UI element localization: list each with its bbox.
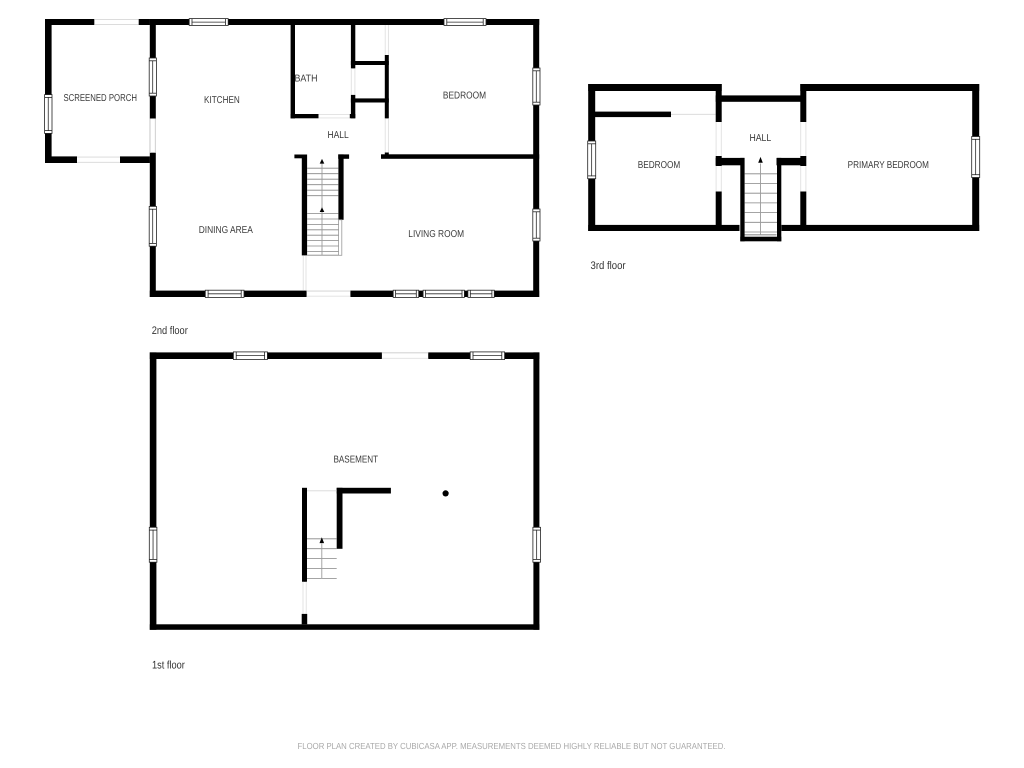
svg-text:HALL: HALL [327,130,349,141]
svg-text:BATH: BATH [295,74,318,85]
svg-text:KITCHEN: KITCHEN [204,95,240,106]
svg-text:DINING AREA: DINING AREA [199,225,253,236]
svg-text:3rd floor: 3rd floor [591,260,626,272]
svg-text:SCREENED PORCH: SCREENED PORCH [63,93,137,104]
svg-text:FLOOR PLAN CREATED BY CUBICASA: FLOOR PLAN CREATED BY CUBICASA APP. MEAS… [298,741,726,751]
svg-text:LIVING ROOM: LIVING ROOM [408,229,464,240]
svg-text:PRIMARY BEDROOM: PRIMARY BEDROOM [848,160,929,171]
svg-text:HALL: HALL [749,133,771,144]
svg-text:BEDROOM: BEDROOM [443,90,486,101]
svg-text:1st floor: 1st floor [152,659,185,671]
svg-text:2nd floor: 2nd floor [152,325,188,337]
svg-text:BASEMENT: BASEMENT [333,454,378,465]
svg-text:BEDROOM: BEDROOM [638,160,681,171]
